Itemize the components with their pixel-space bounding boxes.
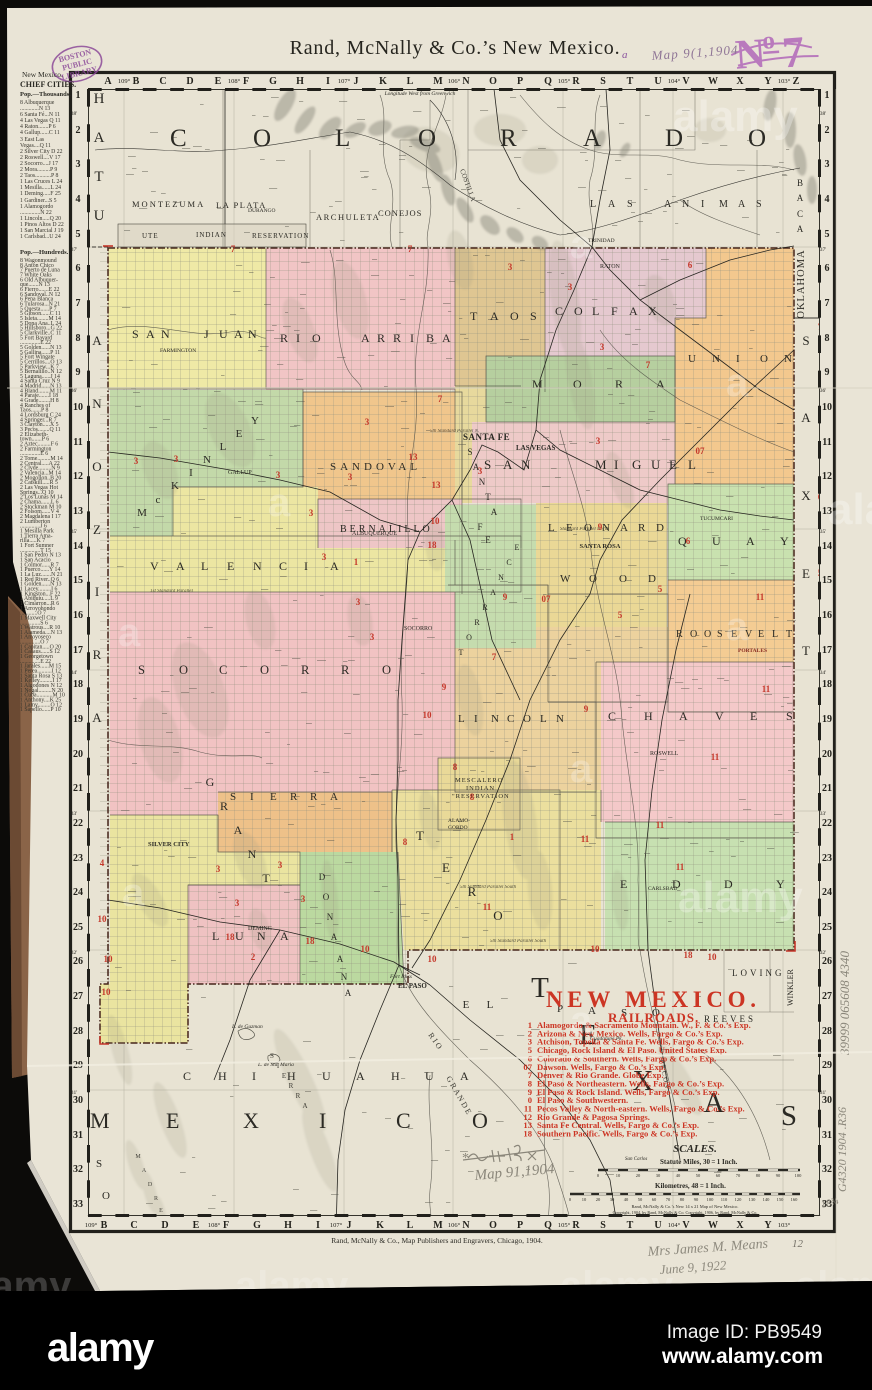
svg-text:50: 50 (696, 1173, 701, 1178)
svg-text:17: 17 (822, 645, 832, 656)
svg-text:24: 24 (822, 887, 832, 898)
svg-text:Southern Pacific. Wells, Farg: Southern Pacific. Wells, Fargo & Co.’s E… (537, 1129, 697, 1139)
svg-text:a: a (268, 481, 291, 525)
svg-text:6: 6 (686, 536, 691, 546)
svg-text:7: 7 (825, 298, 830, 309)
svg-text:23: 23 (822, 853, 832, 864)
svg-text:W: W (708, 76, 718, 87)
svg-text:Rand, McNally & Co., Map Publi: Rand, McNally & Co., Map Publishers and … (331, 1236, 543, 1245)
svg-text:C: C (130, 1220, 137, 1231)
svg-text:10: 10 (423, 710, 433, 720)
svg-text:S: S (781, 1100, 797, 1132)
svg-text:1: 1 (825, 90, 830, 101)
svg-text:9: 9 (503, 592, 508, 602)
svg-text:10: 10 (822, 402, 832, 413)
svg-text:R: R (289, 1082, 294, 1090)
svg-text:18: 18 (306, 936, 316, 946)
svg-text:K: K (376, 1220, 384, 1231)
svg-text:R: R (220, 799, 228, 813)
svg-text:5th Standard Parallel N.: 5th Standard Parallel N. (430, 429, 479, 434)
svg-text:30: 30 (822, 1095, 832, 1106)
svg-text:E: E (485, 535, 491, 545)
svg-text:23: 23 (73, 853, 83, 864)
svg-text:UTE: UTE (142, 232, 159, 240)
svg-text:7: 7 (646, 360, 651, 370)
svg-text:13: 13 (409, 452, 419, 462)
svg-text:108°: 108° (228, 78, 241, 85)
svg-text:7: 7 (492, 652, 497, 662)
svg-text:13: 13 (73, 506, 83, 517)
svg-text:9: 9 (76, 367, 81, 378)
svg-text:106°: 106° (448, 1222, 461, 1229)
svg-text:R: R (154, 1196, 158, 1202)
svg-text:San Carlos: San Carlos (625, 1157, 647, 1162)
svg-text:E: E (236, 428, 243, 440)
svg-text:B: B (133, 76, 140, 87)
svg-text:28: 28 (73, 1026, 83, 1037)
svg-text:07: 07 (542, 594, 552, 604)
svg-text:18: 18 (73, 679, 83, 690)
svg-text:27: 27 (73, 991, 83, 1002)
svg-text:10: 10 (431, 516, 441, 526)
svg-text:16: 16 (822, 610, 832, 621)
svg-text:S: S (600, 76, 606, 87)
svg-text:www.alamy.com: www.alamy.com (661, 1345, 823, 1368)
svg-text:alamy: alamy (47, 1326, 155, 1370)
svg-text:5th Standard Parallel South: 5th Standard Parallel South (490, 939, 547, 944)
svg-text:38': 38' (820, 111, 827, 117)
svg-text:O: O (466, 633, 472, 642)
svg-text:14: 14 (73, 541, 83, 552)
svg-text:106°: 106° (448, 78, 461, 85)
svg-text:CHIEF CITIES.: CHIEF CITIES. (20, 80, 76, 89)
svg-text:T: T (262, 871, 270, 885)
svg-text:G4320 1904 .R36: G4320 1904 .R36 (835, 1107, 849, 1192)
svg-text:GALLUP: GALLUP (228, 470, 252, 476)
svg-text:U: U (654, 76, 661, 87)
svg-text:P: P (517, 76, 523, 87)
svg-text:3: 3 (365, 417, 370, 427)
svg-text:33: 33 (73, 1199, 83, 1210)
svg-text:5th Standard Parallel South: 5th Standard Parallel South (460, 885, 517, 890)
svg-text:O: O (489, 1220, 497, 1231)
svg-text:EL PASO: EL PASO (398, 982, 427, 990)
svg-text:3: 3 (596, 436, 601, 446)
svg-text:1: 1 (76, 90, 81, 101)
svg-text:Kilometres, 48 = 1 Inch.: Kilometres, 48 = 1 Inch. (655, 1182, 726, 1190)
svg-text:N: N (498, 573, 504, 582)
svg-text:50: 50 (638, 1197, 643, 1202)
svg-text:4: 4 (100, 858, 105, 868)
svg-text:107°: 107° (338, 78, 351, 85)
svg-text:1 Carlsbad...U 24: 1 Carlsbad...U 24 (20, 234, 61, 240)
svg-text:J: J (347, 1220, 352, 1231)
svg-text:Pop.—Hundreds.: Pop.—Hundreds. (20, 249, 69, 256)
svg-text:CARLSBAD: CARLSBAD (648, 886, 677, 892)
svg-text:100: 100 (795, 1173, 803, 1178)
svg-text:O: O (323, 892, 330, 902)
svg-text:6: 6 (688, 260, 693, 270)
svg-text:3: 3 (322, 552, 327, 562)
svg-text:108°: 108° (208, 1222, 221, 1229)
svg-text:Longitude West from Greenwich: Longitude West from Greenwich (384, 90, 456, 97)
svg-text:K: K (171, 480, 179, 492)
svg-text:15: 15 (822, 575, 832, 586)
svg-text:3: 3 (309, 508, 314, 518)
svg-text:C: C (159, 76, 166, 87)
svg-text:7: 7 (438, 394, 443, 404)
svg-text:10: 10 (708, 952, 718, 962)
svg-text:a: a (622, 49, 628, 61)
svg-text:40: 40 (624, 1197, 629, 1202)
svg-text:10: 10 (102, 987, 112, 997)
svg-text:Fort Bliss: Fort Bliss (389, 974, 412, 980)
svg-text:3: 3 (134, 456, 139, 466)
svg-text:105°: 105° (558, 1222, 571, 1229)
svg-text:3: 3 (370, 632, 375, 642)
svg-text:30: 30 (73, 1095, 83, 1106)
svg-text:2: 2 (76, 125, 81, 136)
svg-text:130: 130 (749, 1197, 757, 1202)
svg-text:ARCHULETA: ARCHULETA (316, 212, 380, 222)
svg-text:DURANGO: DURANGO (248, 208, 276, 214)
svg-text:103°: 103° (778, 78, 791, 85)
svg-text:Rand, McNally & Co.’s New Mexi: Rand, McNally & Co.’s New Mexico. (290, 37, 621, 59)
svg-text:Image ID: PB9549: Image ID: PB9549 (667, 1322, 822, 1343)
svg-text:a: a (570, 223, 593, 267)
svg-text:E: E (193, 1220, 200, 1231)
svg-text:S: S (270, 1052, 274, 1060)
svg-text:"RESERVATION: "RESERVATION (452, 793, 510, 800)
svg-text:100: 100 (707, 1197, 715, 1202)
svg-text:J: J (354, 76, 359, 87)
svg-text:L: L (407, 1220, 414, 1231)
svg-text:3: 3 (568, 282, 573, 292)
svg-text:36': 36' (820, 388, 827, 394)
svg-text:S: S (96, 1158, 102, 1170)
svg-text:9: 9 (825, 367, 830, 378)
svg-text:D: D (148, 1182, 153, 1188)
svg-text:10: 10 (73, 402, 83, 413)
svg-text:R: R (482, 603, 488, 612)
svg-text:alamy: alamy (828, 485, 872, 534)
svg-text:11: 11 (581, 834, 590, 844)
svg-text:7: 7 (231, 244, 236, 254)
svg-text:32: 32 (73, 1164, 83, 1175)
svg-text:DEMING: DEMING (248, 926, 273, 932)
svg-text:38': 38' (71, 111, 78, 117)
svg-text:c: c (156, 494, 161, 506)
svg-text:F: F (477, 522, 482, 532)
svg-text:19: 19 (822, 714, 832, 725)
svg-text:3: 3 (348, 472, 353, 482)
svg-text:a: a (570, 999, 593, 1043)
svg-text:15: 15 (73, 575, 83, 586)
svg-text:W: W (708, 1220, 718, 1231)
svg-text:103°: 103° (778, 1222, 791, 1229)
svg-text:7: 7 (781, 27, 806, 77)
svg-text:MONTEZUMA: MONTEZUMA (132, 199, 205, 209)
svg-text:29: 29 (822, 1060, 832, 1071)
svg-text:40: 40 (676, 1173, 681, 1178)
svg-text:C: C (506, 558, 511, 567)
svg-text:160: 160 (791, 1197, 799, 1202)
svg-text:80: 80 (756, 1173, 761, 1178)
svg-text:36': 36' (71, 388, 78, 394)
svg-text:R: R (296, 1092, 301, 1100)
svg-text:16: 16 (73, 610, 83, 621)
svg-text:11: 11 (756, 592, 765, 602)
svg-text:M: M (137, 507, 147, 519)
svg-text:A: A (142, 1168, 147, 1174)
svg-text:10: 10 (591, 944, 601, 954)
svg-text:8: 8 (453, 762, 458, 772)
svg-text:INDIAN: INDIAN (466, 785, 495, 792)
svg-text:11: 11 (656, 820, 665, 830)
svg-text:SANTA ROSA: SANTA ROSA (580, 543, 621, 550)
svg-text:A: A (234, 823, 243, 837)
svg-text:M: M (433, 76, 443, 87)
svg-text:X: X (736, 1220, 744, 1231)
svg-text:60: 60 (652, 1197, 657, 1202)
svg-text:E: E (282, 1072, 286, 1080)
svg-text:L: L (220, 441, 227, 453)
svg-text:18: 18 (684, 950, 694, 960)
svg-text:a: a (570, 747, 593, 791)
svg-text:New Mexico.: New Mexico. (22, 70, 63, 79)
svg-text:37': 37' (820, 247, 827, 253)
svg-text:L: L (407, 76, 414, 87)
svg-text:31: 31 (73, 1130, 83, 1141)
svg-text:3: 3 (278, 860, 283, 870)
svg-text:110: 110 (721, 1197, 728, 1202)
svg-text:3: 3 (825, 159, 830, 170)
svg-text:a: a (118, 611, 141, 655)
svg-text:1: 1 (510, 832, 515, 842)
svg-text:N: N (341, 972, 348, 982)
svg-text:10: 10 (104, 954, 114, 964)
svg-text:25: 25 (73, 922, 83, 933)
svg-text:G: G (253, 1220, 261, 1231)
svg-text:E: E (159, 1208, 163, 1214)
svg-text:11: 11 (73, 437, 82, 448)
svg-text:30: 30 (610, 1197, 615, 1202)
svg-text:60: 60 (716, 1173, 721, 1178)
svg-text:70: 70 (736, 1173, 741, 1178)
svg-text:32': 32' (71, 950, 78, 956)
svg-text:INDIAN: INDIAN (196, 231, 227, 239)
svg-text:A: A (345, 988, 352, 998)
svg-text:80: 80 (680, 1197, 685, 1202)
svg-text:alamy: alamy (678, 873, 803, 922)
svg-text:32': 32' (820, 950, 827, 956)
svg-text:11: 11 (711, 752, 720, 762)
svg-text:V: V (682, 1220, 690, 1231)
svg-text:35': 35' (820, 529, 827, 535)
svg-text:25: 25 (822, 922, 832, 933)
svg-text:I: I (189, 467, 193, 479)
svg-text:90: 90 (776, 1173, 781, 1178)
svg-text:33': 33' (71, 811, 78, 817)
svg-text:5: 5 (76, 229, 81, 240)
svg-text:14: 14 (822, 541, 832, 552)
svg-text:35': 35' (71, 529, 78, 535)
svg-text:T: T (485, 492, 491, 502)
svg-text:5: 5 (825, 229, 830, 240)
svg-text:Q: Q (544, 1220, 552, 1231)
svg-text:M: M (433, 1220, 443, 1231)
svg-text:150: 150 (777, 1197, 785, 1202)
svg-text:RESERVATION: RESERVATION (252, 232, 309, 240)
svg-text:O: O (102, 1190, 110, 1202)
svg-text:20: 20 (596, 1197, 601, 1202)
svg-text:V: V (682, 76, 690, 87)
svg-text:28: 28 (822, 1026, 832, 1037)
svg-text:E: E (442, 860, 450, 875)
svg-text:D: D (186, 76, 193, 87)
svg-text:10: 10 (582, 1197, 587, 1202)
svg-text:N: N (479, 477, 486, 487)
svg-text:ROSWELL: ROSWELL (650, 751, 679, 757)
svg-text:CONEJOS: CONEJOS (378, 208, 422, 218)
svg-text:10: 10 (361, 944, 371, 954)
svg-text:4: 4 (76, 194, 81, 205)
svg-text:33': 33' (820, 811, 827, 817)
svg-text:LAS VEGAS: LAS VEGAS (516, 444, 555, 452)
svg-text:34': 34' (71, 670, 78, 676)
svg-text:U: U (654, 1220, 661, 1231)
svg-text:5: 5 (658, 584, 663, 594)
svg-text:H: H (284, 1220, 292, 1231)
svg-text:6: 6 (825, 263, 830, 274)
svg-text:3: 3 (174, 454, 179, 464)
svg-text:K: K (379, 76, 387, 87)
svg-text:LOVING: LOVING (732, 968, 785, 978)
svg-text:3: 3 (356, 597, 361, 607)
svg-text:3: 3 (301, 894, 306, 904)
svg-text:E: E (215, 76, 222, 87)
svg-text:7: 7 (408, 244, 413, 254)
svg-text:OKLAHOMA: OKLAHOMA (796, 249, 807, 318)
svg-text:3: 3 (276, 470, 281, 480)
svg-text:109°: 109° (85, 1222, 98, 1229)
svg-text:SOCORRO: SOCORRO (404, 626, 433, 632)
svg-text:8: 8 (470, 792, 475, 802)
svg-text:13: 13 (432, 480, 442, 490)
svg-text:10: 10 (428, 954, 438, 964)
svg-text:Y: Y (764, 76, 772, 87)
svg-text:4: 4 (825, 194, 830, 205)
svg-text:A: A (331, 932, 338, 942)
svg-text:*: * (462, 1151, 469, 1166)
svg-text:R: R (474, 618, 480, 627)
svg-text:120: 120 (735, 1197, 743, 1202)
svg-text:A: A (490, 588, 496, 597)
svg-text:26: 26 (822, 956, 832, 967)
svg-text:11: 11 (762, 684, 771, 694)
svg-text:O: O (489, 76, 497, 87)
svg-text:L: L (487, 999, 494, 1011)
svg-text:Q: Q (544, 76, 552, 87)
svg-text:R: R (572, 76, 580, 87)
svg-text:27: 27 (822, 991, 832, 1002)
svg-text:A: A (302, 1102, 307, 1110)
svg-text:12: 12 (792, 1238, 804, 1250)
svg-text:S: S (467, 447, 472, 457)
svg-text:19: 19 (73, 714, 83, 725)
svg-text:11: 11 (483, 902, 492, 912)
svg-text:SILVER CITY: SILVER CITY (148, 841, 190, 848)
svg-text:ALAMO-: ALAMO- (448, 818, 470, 824)
svg-text:32: 32 (822, 1164, 832, 1175)
svg-text:Z: Z (793, 76, 800, 87)
svg-text:18: 18 (226, 932, 236, 942)
svg-text:T: T (416, 828, 424, 843)
svg-text:S: S (600, 1220, 606, 1231)
svg-text:3: 3 (478, 466, 483, 476)
svg-text:N: N (327, 912, 334, 922)
svg-text:L. de Guzman: L. de Guzman (231, 1024, 263, 1030)
svg-text:3: 3 (508, 262, 513, 272)
svg-text:70: 70 (666, 1197, 671, 1202)
svg-text:G: G (206, 775, 215, 789)
svg-text:104°: 104° (668, 78, 681, 85)
svg-text:18: 18 (822, 679, 832, 690)
svg-text:37': 37' (71, 247, 78, 253)
svg-text:D: D (161, 1220, 168, 1231)
svg-text:Statute Miles, 30 = 1 Inch.: Statute Miles, 30 = 1 Inch. (660, 1158, 738, 1166)
svg-text:F: F (243, 76, 249, 87)
svg-text:I: I (326, 76, 330, 87)
svg-text:3: 3 (76, 159, 81, 170)
svg-text:2: 2 (825, 125, 830, 136)
svg-text:a: a (122, 871, 145, 915)
svg-text:21: 21 (822, 783, 832, 794)
svg-text:a: a (726, 605, 749, 649)
svg-text:O: O (493, 908, 502, 923)
svg-text:12: 12 (73, 471, 83, 482)
svg-text:o: o (761, 27, 775, 55)
svg-text:8: 8 (76, 333, 81, 344)
svg-text:CHIHUAHUA: CHIHUAHUA (183, 1069, 469, 1083)
svg-text:N: N (248, 847, 257, 861)
svg-text:5: 5 (618, 610, 623, 620)
svg-text:07: 07 (696, 446, 706, 456)
svg-text:31': 31' (820, 1090, 827, 1096)
svg-text:2: 2 (251, 952, 256, 962)
svg-text:39999 065608 4340: 39999 065608 4340 (837, 951, 852, 1057)
svg-text:10: 10 (98, 914, 108, 924)
svg-text:FARMINGTON: FARMINGTON (160, 348, 196, 354)
svg-text:H: H (296, 76, 304, 87)
svg-text:10: 10 (616, 1173, 621, 1178)
svg-text:11: 11 (822, 437, 831, 448)
svg-text:105°: 105° (558, 78, 571, 85)
svg-text:6: 6 (76, 263, 81, 274)
svg-text:SANDOVAL: SANDOVAL (330, 461, 421, 473)
svg-text:9: 9 (598, 522, 603, 532)
svg-text:R: R (572, 1220, 580, 1231)
svg-text:alamy: alamy (673, 92, 798, 141)
svg-text:B: B (101, 1220, 108, 1231)
svg-text:1: 1 (354, 557, 359, 567)
svg-text:4 Gallup......C 11: 4 Gallup......C 11 (20, 130, 60, 136)
svg-text:I: I (316, 1220, 320, 1231)
svg-text:1 Deming.....F 25: 1 Deming.....F 25 (20, 191, 61, 197)
svg-text:3: 3 (235, 898, 240, 908)
svg-text:ALBUQUERQUE: ALBUQUERQUE (352, 531, 397, 537)
svg-text:N: N (203, 454, 211, 466)
